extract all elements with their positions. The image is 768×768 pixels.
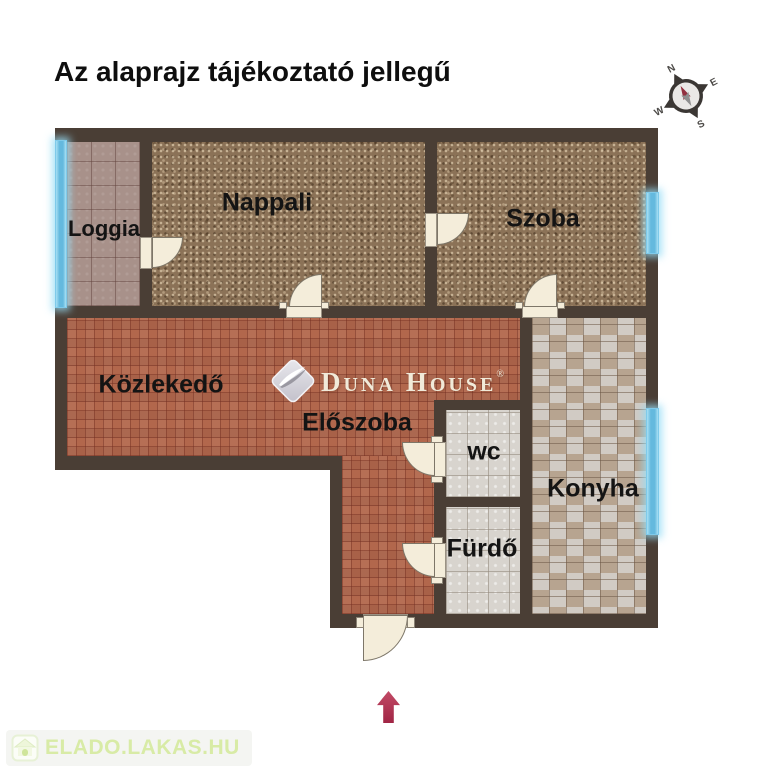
floorplan-canvas: Az alaprajz tájékoztató jellegű N E S W (0, 0, 768, 768)
compass-w-label: W (653, 105, 667, 119)
label-furdo: Fürdő (447, 535, 518, 564)
wall-wc-top (434, 400, 520, 410)
house-icon (11, 734, 39, 762)
compass-e-label: E (709, 76, 720, 89)
door-jamb (356, 617, 364, 628)
entrance-door (363, 615, 408, 661)
logo-word2-initial: H (406, 367, 430, 397)
registered-mark: ® (496, 369, 504, 380)
dunahouse-diamond-icon (267, 355, 319, 407)
wall-wc-left-b (434, 477, 446, 543)
logo-word2-rest: OUSE (430, 374, 496, 396)
door-jamb (407, 617, 415, 628)
compass-s-label: S (696, 118, 707, 131)
label-szoba: Szoba (506, 205, 580, 234)
nappali-floor (152, 142, 425, 306)
door-jamb (557, 302, 565, 309)
furdo-door-threshold (434, 543, 446, 578)
label-konyha: Konyha (547, 475, 639, 504)
wall-wc-furdo-divider (434, 497, 520, 507)
door-jamb (515, 302, 523, 309)
label-kozlekedo: Közlekedő (98, 371, 223, 400)
wall-loggia-right-upper (140, 128, 152, 237)
wall-mid-a (67, 306, 286, 318)
wall-mid-b (322, 306, 522, 318)
wc-door-threshold (434, 442, 446, 477)
hallway-floor-lower (342, 456, 434, 614)
wall-mid-c (558, 306, 646, 318)
loggia-door-threshold (140, 237, 152, 269)
nappali-door-threshold (286, 306, 322, 318)
compass-n-label: N (666, 63, 678, 76)
wall-nappali-szoba-upper (425, 128, 437, 213)
szoba-left-door-threshold (425, 213, 437, 247)
wall-konyha-left (520, 318, 532, 614)
page-title: Az alaprajz tájékoztató jellegű (54, 56, 451, 88)
door-jamb (431, 476, 443, 483)
loggia-window (55, 140, 67, 308)
szoba-window (646, 192, 659, 254)
wall-l-vertical (330, 456, 342, 628)
door-jamb (279, 302, 287, 309)
szoba-door-threshold (522, 306, 558, 318)
logo-word1-rest: UNA (344, 374, 396, 396)
entrance-arrow-icon (377, 691, 400, 723)
site-watermark: ELADO.LAKAS.HU (6, 730, 252, 766)
dunahouse-logo-text: DUNAHOUSE® (321, 367, 504, 398)
door-jamb (431, 577, 443, 584)
label-wc: wc (467, 438, 500, 467)
konyha-window (646, 408, 659, 535)
wall-nappali-szoba-lower (425, 247, 437, 306)
door-jamb (431, 436, 443, 443)
wall-hall-bottom (55, 456, 342, 470)
label-loggia: Loggia (68, 216, 140, 242)
watermark-label: ELADO.LAKAS.HU (45, 736, 240, 760)
door-jamb (321, 302, 329, 309)
label-eloszoba: Előszoba (302, 409, 412, 438)
konyha-floor (532, 318, 646, 614)
logo-word1-initial: D (321, 367, 344, 397)
door-jamb (431, 537, 443, 544)
compass-icon: N E S W (649, 58, 723, 134)
label-nappali: Nappali (222, 189, 312, 218)
